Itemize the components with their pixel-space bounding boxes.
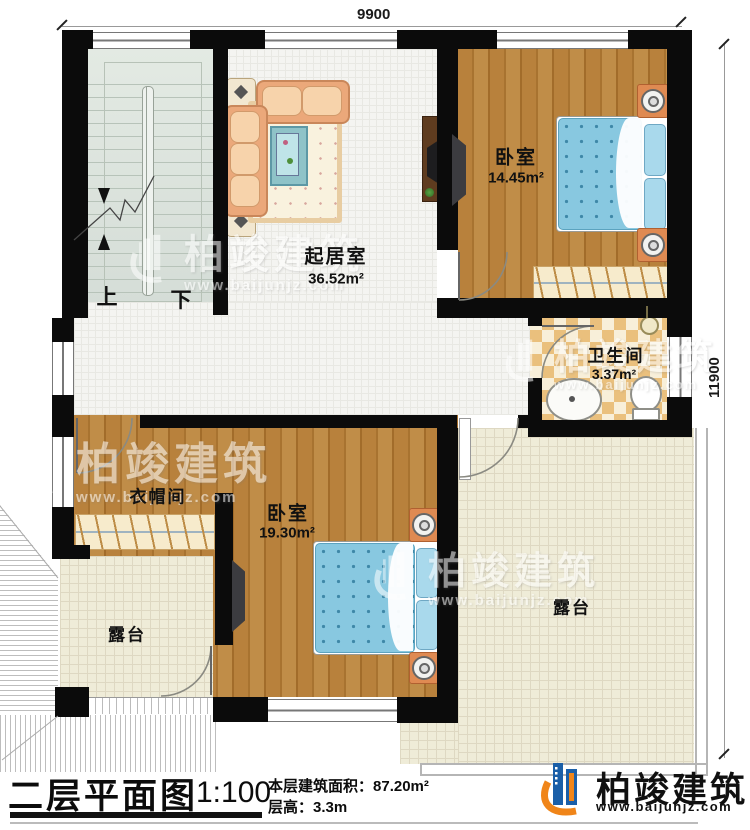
wall — [215, 493, 233, 645]
tv-icon — [232, 560, 245, 632]
nightstand-icon — [409, 508, 439, 542]
wall — [397, 30, 497, 49]
wall — [437, 298, 692, 318]
window — [265, 32, 397, 49]
lamp-icon — [412, 513, 436, 537]
sofa-cushion — [230, 175, 260, 207]
pillow-icon — [644, 124, 666, 176]
stair-center-rail — [142, 86, 154, 296]
wall — [437, 428, 458, 713]
stair-up-label: 上 — [97, 281, 120, 311]
light-fixture-icon — [640, 316, 659, 335]
wall — [667, 30, 692, 337]
wall — [62, 30, 88, 318]
room-label-terrace-left: 露台 — [108, 621, 146, 646]
room-label-bedroom-top: 卧室 — [495, 143, 537, 170]
window — [497, 32, 628, 49]
nightstand-icon — [409, 652, 439, 684]
plan-stat-area-value: 87.20m² — [373, 778, 429, 795]
wall — [528, 318, 542, 326]
sofa-cushion — [230, 111, 260, 143]
hall-floor — [74, 302, 530, 415]
window — [268, 699, 397, 722]
wall — [518, 415, 542, 428]
window — [93, 32, 190, 49]
bed-sheet-fold — [616, 118, 642, 228]
wall — [190, 30, 265, 49]
dimension-top-value: 9900 — [357, 6, 390, 23]
plan-stat-area: 本层建筑面积：87.20m² — [268, 775, 429, 796]
stair-down-label: 下 — [171, 284, 194, 314]
company-website: www.baijunjz.com — [596, 799, 732, 814]
wardrobe-icon — [533, 266, 669, 300]
plan-stat-area-label: 本层建筑面积： — [268, 778, 373, 795]
coffee-table-top — [276, 133, 299, 176]
sofa-cushion — [230, 143, 260, 175]
nightstand-icon — [637, 228, 669, 262]
wall — [213, 49, 228, 315]
room-label-bedroom-bottom: 卧室 — [267, 499, 309, 526]
pillow-icon — [644, 178, 666, 230]
wall — [213, 697, 268, 722]
terrace-right-floor-corner — [400, 722, 458, 764]
wall — [52, 395, 74, 437]
room-area-living: 36.52m² — [308, 271, 364, 288]
dimension-line-right — [724, 44, 725, 758]
plan-stat-height: 层高：3.3m — [268, 796, 347, 817]
terrace-right-rail-right — [695, 428, 708, 776]
window — [52, 342, 74, 395]
lamp-icon — [412, 656, 436, 680]
floor-plan-canvas: 柏竣建筑 www.baijunjz.com 柏竣建筑 www.baijunjz.… — [0, 0, 750, 830]
dimension-tick — [56, 19, 67, 30]
nightstand-icon — [637, 84, 669, 118]
title-underline-thick — [10, 812, 262, 818]
sofa-cushion — [262, 86, 302, 116]
door-leaf — [459, 418, 471, 480]
plan-stat-height-value: 3.3m — [313, 799, 347, 816]
cloakroom-hanger-rack-icon — [75, 514, 215, 550]
wall — [140, 415, 457, 428]
company-logo-icon — [536, 758, 590, 818]
room-area-bedroom-top: 14.45m² — [488, 170, 544, 187]
dimension-line-top — [62, 26, 682, 27]
room-label-cloakroom: 衣帽间 — [130, 483, 187, 508]
lamp-icon — [641, 89, 665, 113]
sofa-cushion — [302, 86, 342, 116]
sink-drain — [569, 396, 575, 402]
wall — [528, 420, 692, 437]
wall — [55, 687, 89, 717]
plant-icon — [425, 188, 434, 197]
room-label-living: 起居室 — [304, 242, 367, 269]
lamp-icon — [641, 233, 665, 257]
room-area-bedroom-bottom: 19.30m² — [259, 525, 315, 542]
bed-sheet-fold — [388, 543, 413, 651]
tv-icon — [452, 134, 466, 206]
pillow-icon — [416, 600, 438, 650]
plan-stat-height-label: 层高： — [268, 799, 313, 816]
flower-icon — [283, 140, 288, 145]
room-area-bathroom: 3.37m² — [592, 366, 636, 382]
room-label-bathroom: 卫生间 — [588, 342, 645, 367]
wall — [397, 697, 458, 723]
roof-eave-left — [0, 505, 58, 715]
plan-scale: 1:100 — [196, 776, 271, 810]
pillow-icon — [416, 548, 438, 598]
wall — [52, 318, 74, 342]
window — [669, 337, 692, 397]
flower-icon — [287, 158, 293, 164]
room-label-terrace-right: 露台 — [553, 594, 591, 619]
title-underline-thin — [10, 822, 698, 824]
wall — [52, 545, 90, 559]
window — [52, 437, 74, 507]
roof-eave-bottom — [0, 715, 218, 772]
dimension-right-value: 11900 — [706, 357, 723, 398]
